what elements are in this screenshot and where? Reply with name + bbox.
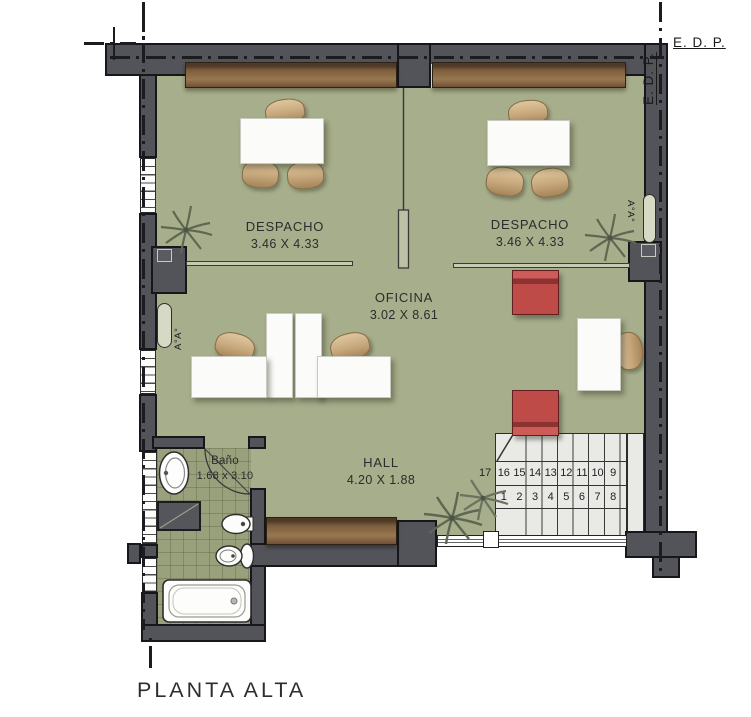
floor-plan-canvas: 16 15 14 13 12 11 10 9 1 2 3 4 5 6 7 8 1… xyxy=(0,0,751,717)
pier-hall-wall xyxy=(397,520,437,567)
room-label-oficina: OFICINA 3.02 X 8.61 xyxy=(334,290,474,323)
centerline-dot-bottom-left xyxy=(149,638,152,642)
partition-right xyxy=(453,263,630,268)
wall-bathroom-bottom xyxy=(141,624,266,642)
stair-number: 15 xyxy=(512,467,528,479)
centerline-right xyxy=(659,2,662,576)
centerline-left xyxy=(142,43,145,630)
stair-number: 9 xyxy=(605,467,621,479)
centerline-top-left-horizontal xyxy=(84,42,136,45)
stair-number: 10 xyxy=(590,467,606,479)
edp-label-vertical: E. D. P. xyxy=(641,3,656,105)
stair-number: 5 xyxy=(559,491,575,503)
wall-bathroom-top xyxy=(152,436,205,449)
stair-number: 2 xyxy=(512,491,528,503)
room-label-bano: Baño 1.68 x 3.10 xyxy=(183,454,267,483)
vent-label-left: A°A° xyxy=(173,302,184,350)
stair-number: 12 xyxy=(559,467,575,479)
stair-number: 8 xyxy=(605,491,621,503)
stair-number: 17 xyxy=(479,467,491,479)
wall-center-stub xyxy=(397,43,431,88)
sheet-title: PLANTA ALTA xyxy=(137,678,306,703)
desk-oficina-right xyxy=(317,356,391,398)
room-label-hall: HALL 4.20 X 1.88 xyxy=(311,455,451,488)
room-dims: 4.20 X 1.88 xyxy=(311,472,451,488)
centerline-tick-top-left xyxy=(142,2,145,32)
room-dims: 3.46 X 4.33 xyxy=(460,234,600,250)
room-name: DESPACHO xyxy=(460,217,600,234)
credenza-hall xyxy=(266,517,397,545)
centerline-tick-bottom-left xyxy=(149,646,152,668)
room-label-despacho-left: DESPACHO 3.46 X 4.33 xyxy=(215,219,355,252)
pier-left-exterior xyxy=(127,543,141,564)
centerline-dot-top-left xyxy=(142,36,145,40)
stair-numbers-lower: 1 2 3 4 5 6 7 8 xyxy=(496,486,621,508)
radiator-left xyxy=(157,303,172,348)
stair-number: 3 xyxy=(527,491,543,503)
room-label-despacho-right: DESPACHO 3.46 X 4.33 xyxy=(460,217,600,250)
armchair-red-bottom xyxy=(512,390,559,436)
stair-number: 14 xyxy=(527,467,543,479)
stair-railing-window xyxy=(437,535,627,547)
credenza-despacho-left xyxy=(185,62,397,88)
stair-number: 16 xyxy=(496,467,512,479)
pier-detail-right xyxy=(641,244,656,257)
stair-numbers-upper: 16 15 14 13 12 11 10 9 xyxy=(496,462,621,484)
stair-number: 1 xyxy=(496,491,512,503)
desk-despacho-right xyxy=(487,120,570,166)
room-name: OFICINA xyxy=(334,290,474,307)
stair-number: 11 xyxy=(574,467,590,479)
stair-number: 7 xyxy=(590,491,606,503)
railing-post xyxy=(483,531,499,548)
room-name: Baño xyxy=(183,454,267,469)
room-dims: 1.68 x 3.10 xyxy=(183,469,267,483)
pier-detail-left xyxy=(157,249,172,262)
room-dims: 3.46 X 4.33 xyxy=(215,236,355,252)
credenza-despacho-right xyxy=(432,62,626,88)
room-name: DESPACHO xyxy=(215,219,355,236)
wall-right xyxy=(644,43,668,535)
stair-number: 6 xyxy=(574,491,590,503)
armchair-red-top xyxy=(512,270,559,315)
stair-number: 13 xyxy=(543,467,559,479)
staircase: 16 15 14 13 12 11 10 9 1 2 3 4 5 6 7 8 1… xyxy=(495,433,644,538)
desk-right-wall xyxy=(577,318,621,391)
edp-label-horizontal: E. D. P. xyxy=(673,35,726,50)
room-name: HALL xyxy=(311,455,451,472)
wall-bathroom-top-stub xyxy=(248,436,266,449)
desk-despacho-left xyxy=(240,118,324,164)
desk-oficina-left xyxy=(191,356,267,398)
desk-panel-left xyxy=(266,313,293,398)
room-dims: 3.02 X 8.61 xyxy=(334,307,474,323)
partition-left xyxy=(186,261,353,266)
centerline-top-wall xyxy=(110,56,664,59)
pier-bottom-right-b xyxy=(652,556,680,578)
vent-label-right: A°A° xyxy=(625,200,636,242)
radiator-right xyxy=(643,194,656,243)
stair-number: 4 xyxy=(543,491,559,503)
